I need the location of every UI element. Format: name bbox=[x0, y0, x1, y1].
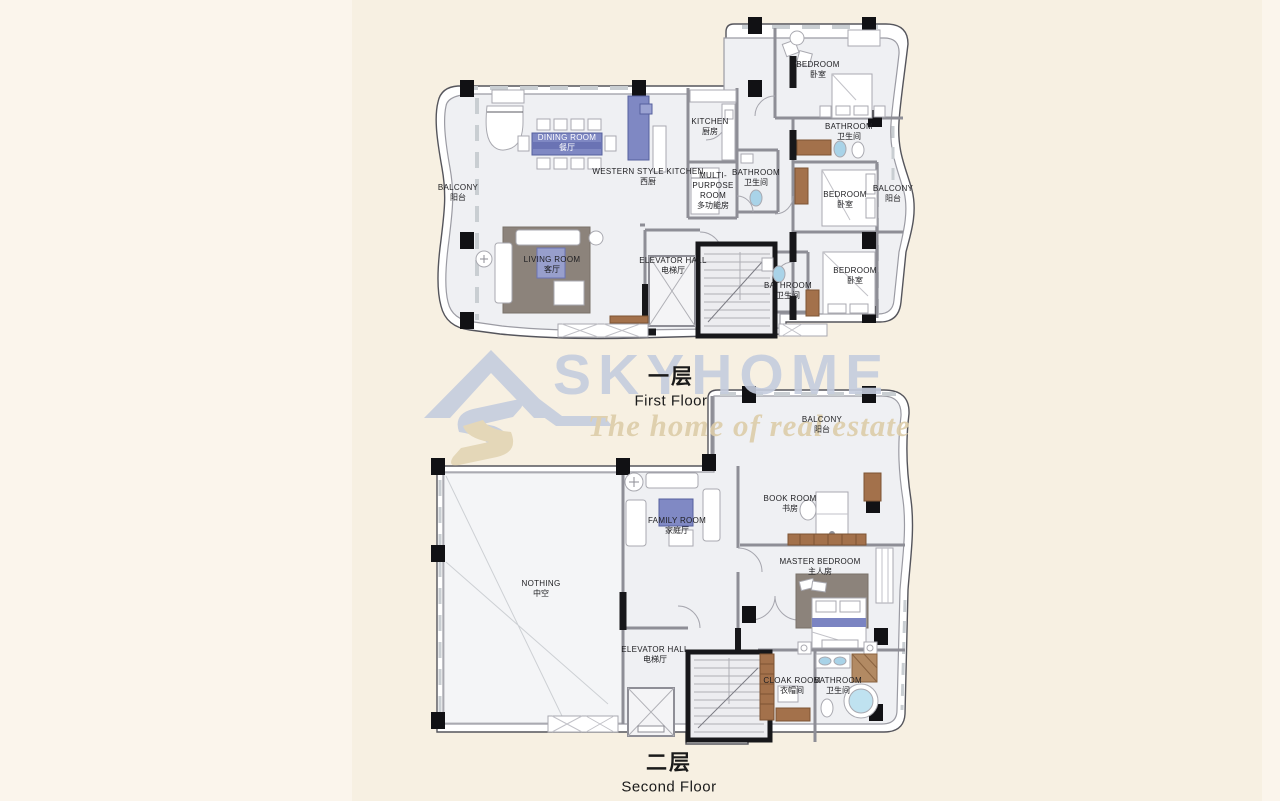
room-label-zh: 厨房 bbox=[691, 127, 728, 137]
room-label-en: BATHROOM bbox=[825, 122, 873, 132]
room-label-elevator-hall-f1: ELEVATOR HALL 电梯厅 bbox=[639, 256, 706, 276]
room-label-en: NOTHING bbox=[522, 579, 561, 589]
room-label-zh: 卫生间 bbox=[825, 132, 873, 142]
room-label-en: BEDROOM bbox=[796, 60, 839, 70]
second-floor-title-zh: 二层 bbox=[621, 747, 716, 777]
room-label-en: KITCHEN bbox=[691, 117, 728, 127]
room-label-en: ELEVATOR HALL bbox=[639, 256, 706, 266]
room-label-zh: 卫生间 bbox=[814, 686, 862, 696]
room-label-zh: 餐厅 bbox=[538, 143, 596, 153]
room-label-book-room: BOOK ROOM 书房 bbox=[764, 494, 817, 514]
room-label-bathroom-f2: BATHROOM 卫生间 bbox=[814, 676, 862, 696]
room-label-balcony-right-f1: BALCONY 阳台 bbox=[873, 184, 913, 204]
room-label-master-bedroom: MASTER BEDROOM 主人房 bbox=[779, 557, 860, 577]
room-label-zh: 多功能房 bbox=[685, 201, 741, 211]
room-label-en: LIVING ROOM bbox=[524, 255, 581, 265]
room-label-en: FAMILY ROOM bbox=[648, 516, 706, 526]
room-label-family-room: FAMILY ROOM 家庭厅 bbox=[648, 516, 706, 536]
room-label-en: BALCONY bbox=[438, 183, 478, 193]
room-label-zh: 客厅 bbox=[524, 265, 581, 275]
room-label-nothing-void: NOTHING 中空 bbox=[522, 579, 561, 599]
room-label-zh: 阳台 bbox=[873, 194, 913, 204]
room-label-en: BALCONY bbox=[873, 184, 913, 194]
room-label-en: ELEVATOR HALL bbox=[621, 645, 688, 655]
room-label-en: BATHROOM bbox=[814, 676, 862, 686]
room-label-balcony-f2: BALCONY 阳台 bbox=[802, 415, 842, 435]
floorplan-sheet: SKYHOME The home of real estate BALCONY … bbox=[0, 0, 1280, 801]
room-label-zh: 卧室 bbox=[823, 200, 866, 210]
room-label-zh: 阳台 bbox=[802, 425, 842, 435]
room-label-en: BEDROOM bbox=[823, 190, 866, 200]
room-label-zh: 电梯厅 bbox=[639, 266, 706, 276]
room-label-zh: 卧室 bbox=[833, 276, 876, 286]
second-floor-title-en: Second Floor bbox=[621, 779, 716, 796]
room-label-bedroom-topright: BEDROOM 卧室 bbox=[796, 60, 839, 80]
room-label-zh: 主人房 bbox=[779, 567, 860, 577]
room-label-bathroom-wing: BATHROOM 卫生间 bbox=[825, 122, 873, 142]
room-label-zh: 卧室 bbox=[796, 70, 839, 80]
room-label-zh: 卫生间 bbox=[764, 291, 812, 301]
room-label-en: MASTER BEDROOM bbox=[779, 557, 860, 567]
room-label-zh: 家庭厅 bbox=[648, 526, 706, 536]
room-label-en: DINING ROOM bbox=[538, 133, 596, 143]
room-label-elevator-hall-f2: ELEVATOR HALL 电梯厅 bbox=[621, 645, 688, 665]
room-label-cloak-room: CLOAK ROOM 衣帽间 bbox=[763, 676, 820, 696]
room-label-zh: 阳台 bbox=[438, 193, 478, 203]
room-label-en: BALCONY bbox=[802, 415, 842, 425]
room-label-en: CLOAK ROOM bbox=[763, 676, 820, 686]
room-label-kitchen: KITCHEN 厨房 bbox=[691, 117, 728, 137]
room-label-zh: 书房 bbox=[764, 504, 817, 514]
first-floor-title-en: First Floor bbox=[635, 393, 708, 410]
room-label-bathroom-lower-f1: BATHROOM 卫生间 bbox=[764, 281, 812, 301]
room-label-en: BATHROOM bbox=[764, 281, 812, 291]
elevator-second-floor bbox=[628, 688, 674, 736]
room-label-zh: 中空 bbox=[522, 589, 561, 599]
room-label-bedroom-mid: BEDROOM 卧室 bbox=[823, 190, 866, 210]
room-label-balcony-left-f1: BALCONY 阳台 bbox=[438, 183, 478, 203]
room-label-bathroom-mid-f1: BATHROOM 卫生间 bbox=[732, 168, 780, 188]
room-label-zh: 衣帽间 bbox=[763, 686, 820, 696]
stairs-second-floor bbox=[688, 652, 770, 740]
room-label-zh: 电梯厅 bbox=[621, 655, 688, 665]
room-label-living-room: LIVING ROOM 客厅 bbox=[524, 255, 581, 275]
room-label-dining-room: DINING ROOM 餐厅 bbox=[538, 133, 596, 153]
room-label-en: BOOK ROOM bbox=[764, 494, 817, 504]
room-label-zh: 卫生间 bbox=[732, 178, 780, 188]
second-floor-title: 二层 Second Floor bbox=[621, 747, 716, 796]
first-floor-title: 一层 First Floor bbox=[635, 361, 708, 410]
room-label-en: BEDROOM bbox=[833, 266, 876, 276]
room-label-bedroom-bottomright: BEDROOM 卧室 bbox=[833, 266, 876, 286]
first-floor-title-zh: 一层 bbox=[635, 361, 708, 391]
room-label-en: BATHROOM bbox=[732, 168, 780, 178]
